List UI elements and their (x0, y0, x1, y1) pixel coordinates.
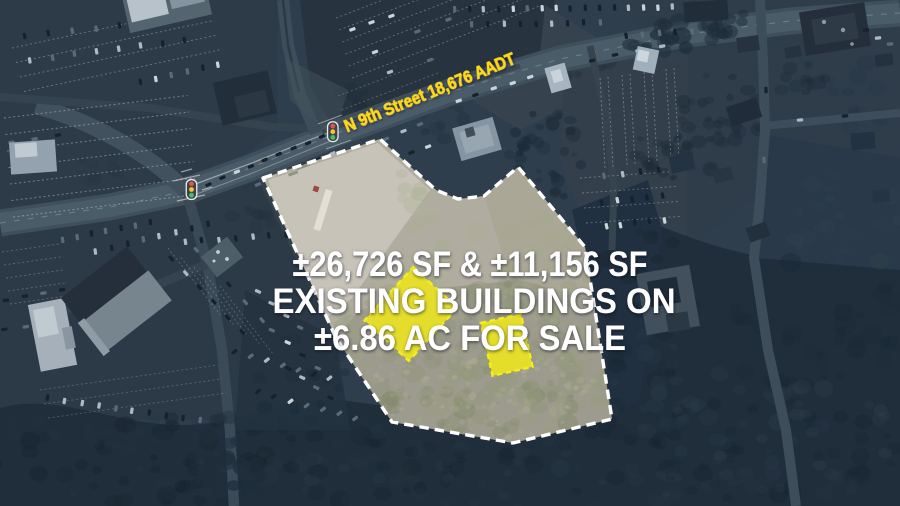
svg-text:±6.86 AC FOR SALE: ±6.86 AC FOR SALE (314, 318, 626, 358)
svg-text:EXISTING BUILDINGS ON: EXISTING BUILDINGS ON (273, 281, 676, 321)
svg-text:±26,726 SF & ±11,156 SF: ±26,726 SF & ±11,156 SF (293, 244, 648, 284)
